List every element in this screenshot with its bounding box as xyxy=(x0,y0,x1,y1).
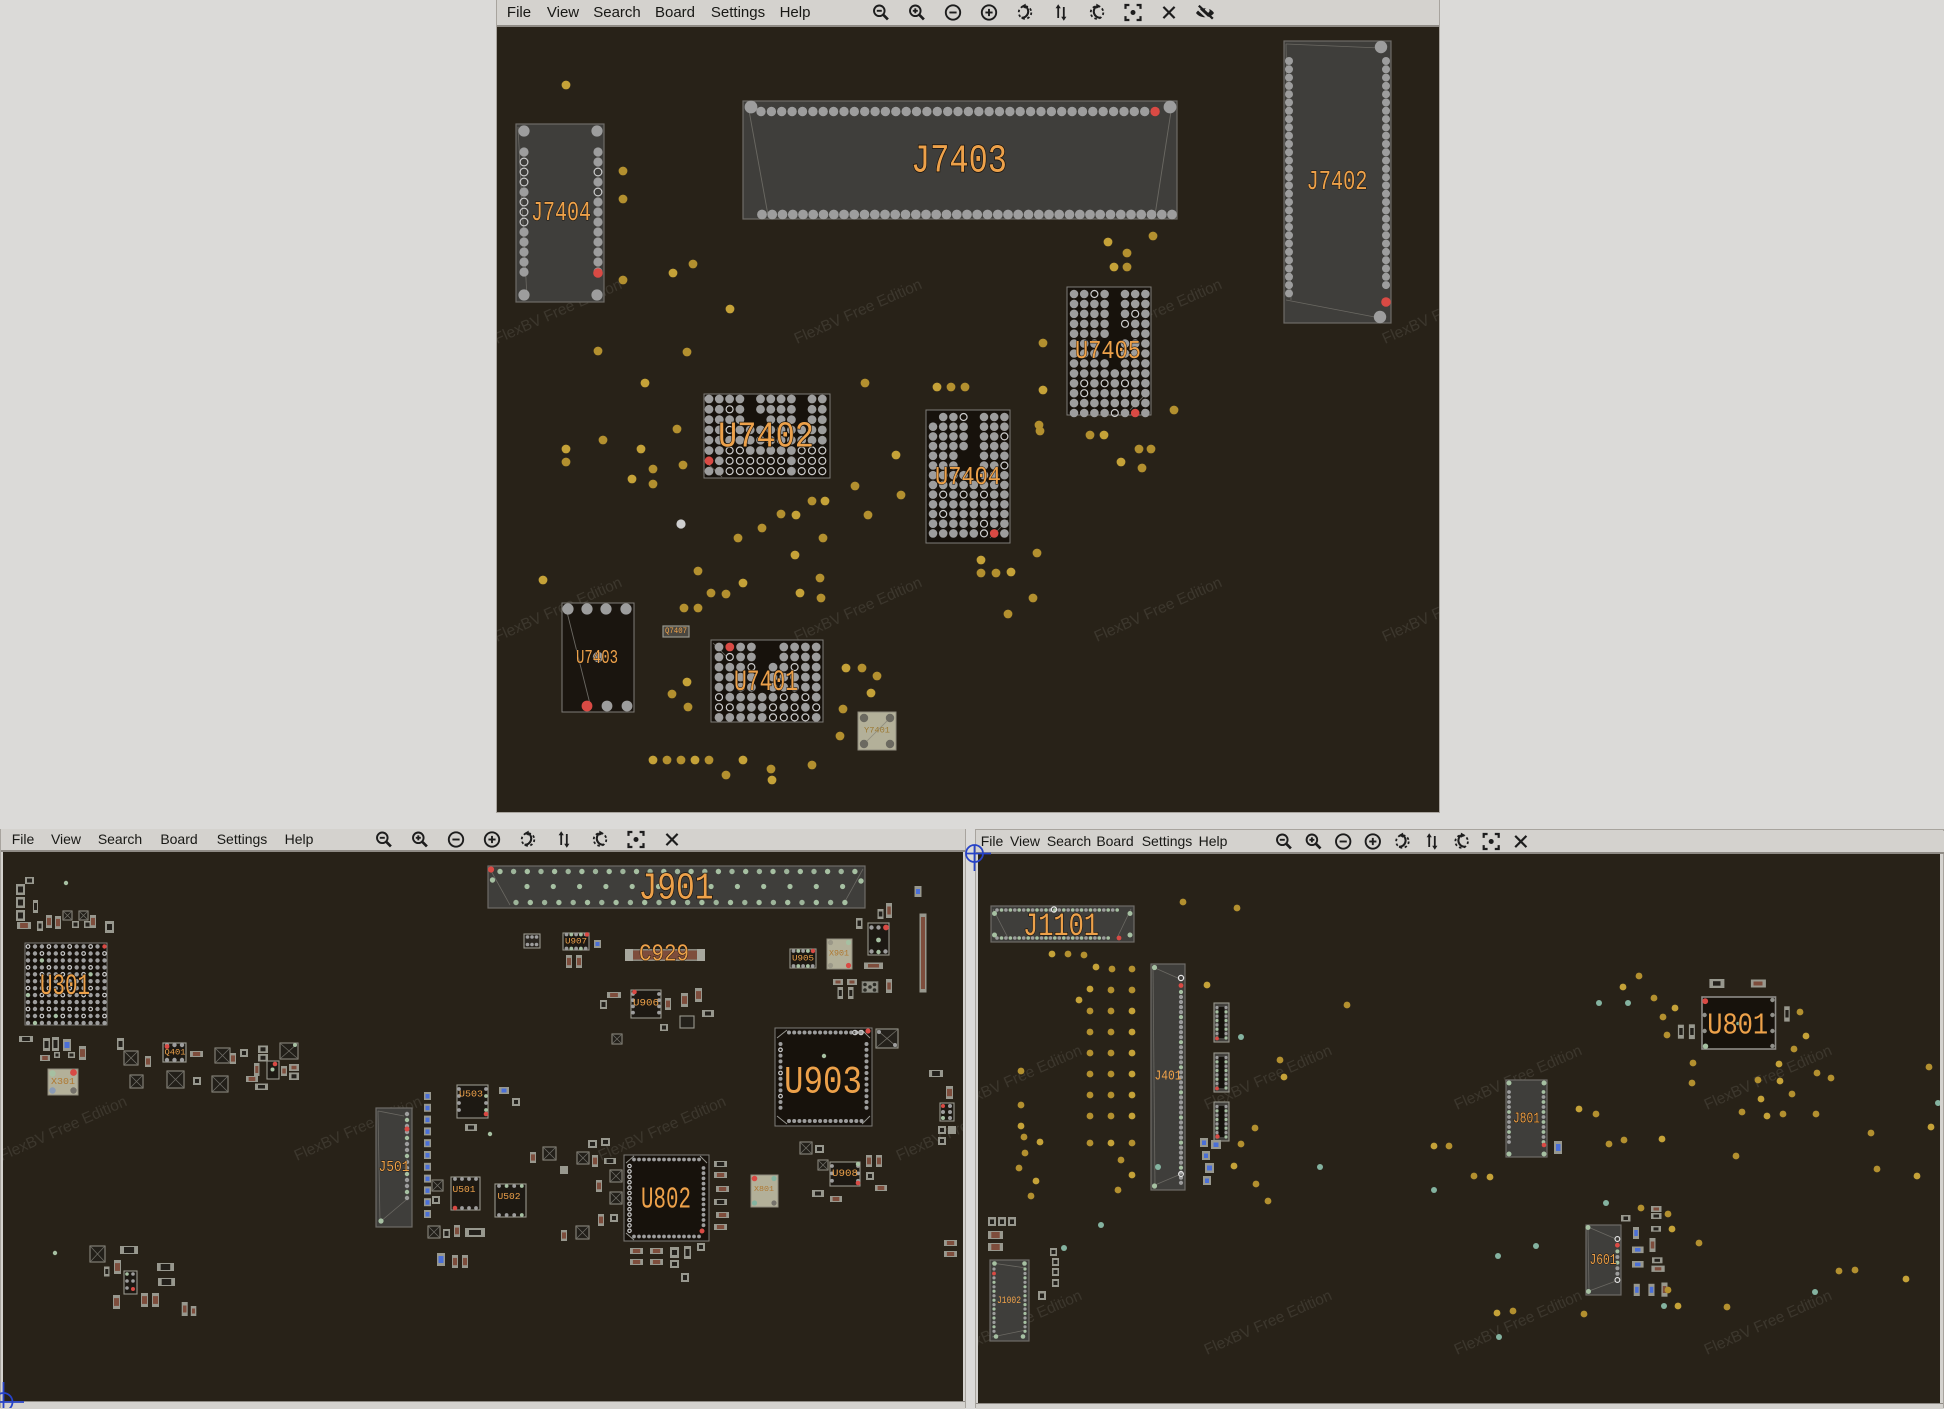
svg-text:Q401: Q401 xyxy=(165,1048,186,1058)
svg-text:U501: U501 xyxy=(453,1185,476,1195)
svg-text:U907: U907 xyxy=(565,937,587,947)
svg-text:X301: X301 xyxy=(51,1077,75,1087)
svg-text:U7403: U7403 xyxy=(576,647,618,669)
svg-text:X801: X801 xyxy=(754,1186,775,1194)
svg-text:Y7401: Y7401 xyxy=(864,727,890,736)
svg-text:U502: U502 xyxy=(498,1192,521,1202)
svg-text:J601: J601 xyxy=(1590,1253,1617,1269)
svg-text:X901: X901 xyxy=(829,950,849,959)
svg-text:J1101: J1101 xyxy=(1023,908,1099,945)
svg-text:U7404: U7404 xyxy=(935,462,1001,492)
svg-text:U503: U503 xyxy=(459,1089,483,1100)
svg-text:J501: J501 xyxy=(379,1160,410,1176)
svg-text:U905: U905 xyxy=(792,954,814,964)
svg-text:J7403: J7403 xyxy=(911,140,1007,185)
svg-text:U802: U802 xyxy=(641,1183,691,1218)
svg-text:U906: U906 xyxy=(633,999,659,1010)
svg-text:U7405: U7405 xyxy=(1075,336,1141,366)
svg-text:U301: U301 xyxy=(40,970,90,1004)
svg-text:J401: J401 xyxy=(1155,1070,1182,1085)
svg-text:J901: J901 xyxy=(639,868,714,911)
svg-text:J7404: J7404 xyxy=(531,199,591,229)
svg-text:J801: J801 xyxy=(1513,1112,1540,1128)
svg-text:J7402: J7402 xyxy=(1307,168,1368,198)
svg-text:U903: U903 xyxy=(784,1061,862,1105)
svg-text:U801: U801 xyxy=(1707,1009,1768,1044)
svg-text:J1002: J1002 xyxy=(997,1295,1021,1307)
svg-text:C929: C929 xyxy=(639,942,689,969)
svg-text:U7401: U7401 xyxy=(734,666,798,700)
svg-text:Q7407: Q7407 xyxy=(665,627,687,636)
svg-text:U908: U908 xyxy=(832,1168,858,1180)
svg-text:U7402: U7402 xyxy=(718,417,814,458)
